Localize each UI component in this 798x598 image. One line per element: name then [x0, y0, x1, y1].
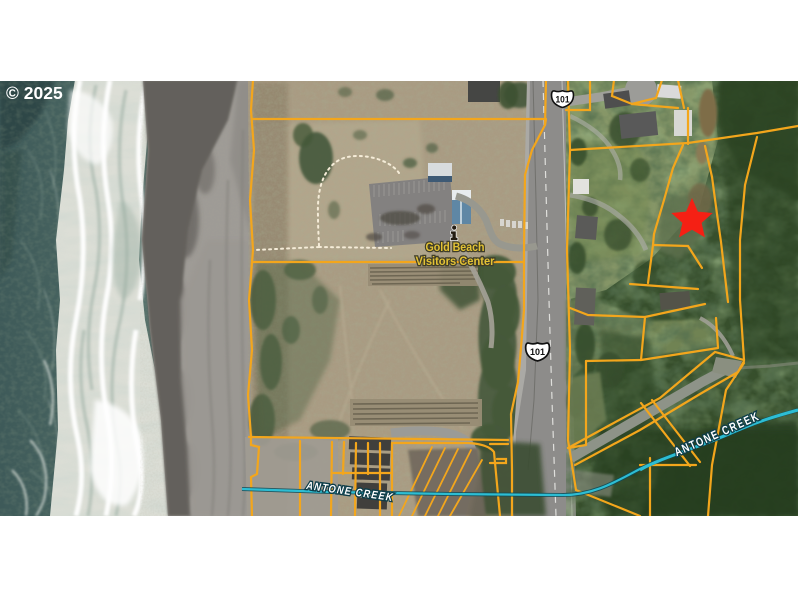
svg-text:101: 101 [530, 347, 546, 358]
svg-text:Visitors Center: Visitors Center [416, 256, 495, 268]
svg-text:101: 101 [556, 94, 570, 104]
svg-text:Gold Beach: Gold Beach [426, 242, 485, 254]
svg-text:© 2025: © 2025 [6, 83, 63, 103]
